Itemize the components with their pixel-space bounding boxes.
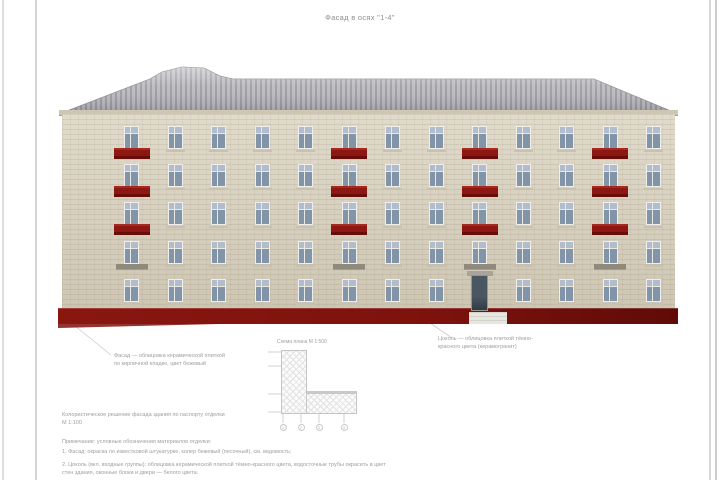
balcony — [462, 186, 498, 197]
window — [124, 241, 139, 264]
window — [603, 126, 618, 149]
window — [516, 202, 531, 225]
window — [603, 279, 618, 302]
window — [646, 202, 661, 225]
window — [472, 126, 487, 149]
plinth-band — [58, 308, 678, 324]
balcony — [462, 224, 498, 235]
window — [168, 164, 183, 187]
floor2-canopy — [594, 264, 626, 269]
window — [646, 241, 661, 264]
balcony — [592, 186, 628, 197]
window — [255, 164, 270, 187]
window — [603, 164, 618, 187]
right-annotation-line1: Цоколь — облицовка плиткой тёмно- — [438, 336, 533, 344]
right-annotation-line2: красного цвета (керамогранит) — [438, 344, 533, 352]
axis-bubble: 1 — [280, 424, 287, 431]
entrance-steps — [469, 312, 507, 324]
facade-wall — [62, 114, 675, 310]
window — [255, 241, 270, 264]
window — [429, 202, 444, 225]
balcony — [114, 224, 150, 235]
window — [342, 241, 357, 264]
window — [646, 126, 661, 149]
window — [385, 126, 400, 149]
window — [559, 279, 574, 302]
window — [124, 164, 139, 187]
balcony — [331, 148, 367, 159]
left-annotation-line1: Фасад — облицовка керамической плиткой — [114, 353, 225, 361]
window — [211, 241, 226, 264]
window — [255, 202, 270, 225]
window — [472, 202, 487, 225]
notes-title: Колористическое решение фасада здания по… — [62, 412, 225, 420]
window — [559, 241, 574, 264]
balcony — [114, 148, 150, 159]
window — [516, 164, 531, 187]
axis-bubble: 4 — [341, 424, 348, 431]
drawing-sheet: Фасад в осях "1-4" — [0, 0, 720, 480]
balcony — [331, 224, 367, 235]
window — [298, 241, 313, 264]
entrance-door — [471, 275, 488, 311]
roof-shading — [59, 67, 678, 114]
drawing-title: Фасад в осях "1-4" — [0, 13, 720, 22]
window — [646, 164, 661, 187]
window — [211, 126, 226, 149]
sheet-edge-left-outer — [2, 0, 4, 480]
window — [342, 279, 357, 302]
window — [385, 279, 400, 302]
roof — [59, 67, 678, 114]
window — [559, 126, 574, 149]
window — [211, 164, 226, 187]
window — [429, 126, 444, 149]
window — [298, 164, 313, 187]
window — [255, 279, 270, 302]
window — [168, 279, 183, 302]
notes-item-2: 2. Цоколь (вкл. входные группы): облицов… — [62, 462, 386, 470]
axis-bubble: 2 — [298, 424, 305, 431]
window — [516, 241, 531, 264]
window — [211, 279, 226, 302]
notes-item-2-cont: стен здания, оконные блоки и двери — бел… — [62, 470, 198, 478]
window — [298, 126, 313, 149]
balcony — [462, 148, 498, 159]
window — [472, 164, 487, 187]
window — [342, 202, 357, 225]
window — [298, 202, 313, 225]
window — [559, 164, 574, 187]
window — [516, 279, 531, 302]
key-plan-label: Схема плана М 1:500 — [277, 339, 327, 346]
window — [168, 126, 183, 149]
notes-header: Примечание: условные обозначения материа… — [62, 439, 211, 447]
window — [385, 164, 400, 187]
notes-item-1: 1. Фасад: окраска по известковой штукату… — [62, 449, 292, 457]
right-annotation: Цоколь — облицовка плиткой тёмно- красно… — [438, 336, 533, 351]
window — [124, 202, 139, 225]
balcony — [331, 186, 367, 197]
window — [342, 126, 357, 149]
window — [516, 126, 531, 149]
window — [385, 241, 400, 264]
window — [385, 202, 400, 225]
window — [168, 241, 183, 264]
window — [124, 279, 139, 302]
window — [603, 241, 618, 264]
balcony — [114, 186, 150, 197]
balcony — [592, 224, 628, 235]
balcony — [592, 148, 628, 159]
window — [342, 164, 357, 187]
window — [429, 279, 444, 302]
window — [255, 126, 270, 149]
window — [603, 202, 618, 225]
floor2-canopy — [464, 264, 496, 269]
key-plan-wing-block — [307, 391, 357, 414]
floor2-canopy — [333, 264, 365, 269]
window — [429, 241, 444, 264]
window — [298, 279, 313, 302]
window — [124, 126, 139, 149]
key-plan-stair-block — [281, 350, 307, 414]
floor2-canopy — [116, 264, 148, 269]
left-annotation-line2: по кирпичной кладке, цвет бежевый — [114, 361, 225, 369]
window — [168, 202, 183, 225]
window — [429, 164, 444, 187]
window — [646, 279, 661, 302]
sheet-edge-right-inner — [709, 0, 711, 480]
left-annotation: Фасад — облицовка керамической плиткой п… — [114, 353, 225, 368]
window — [211, 202, 226, 225]
window — [559, 202, 574, 225]
notes-scale: М 1:100 — [62, 420, 82, 428]
sheet-edge-right-outer — [715, 0, 717, 480]
axis-bubble: 3 — [316, 424, 323, 431]
window — [472, 241, 487, 264]
leader-line-left — [75, 326, 111, 355]
sheet-edge-left-inner — [35, 0, 37, 480]
